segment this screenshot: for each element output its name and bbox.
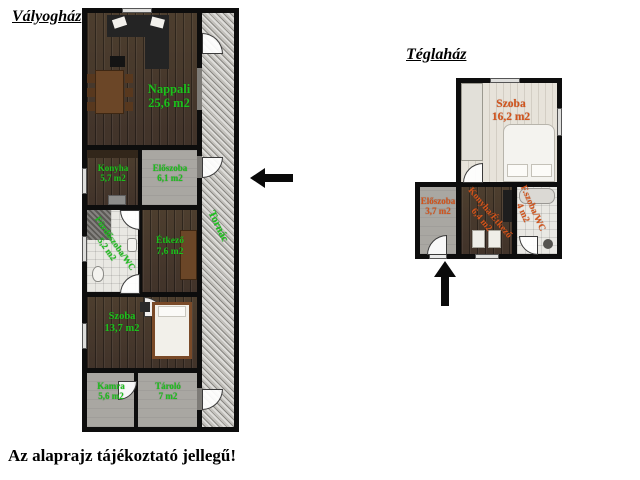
chair [87, 74, 95, 83]
window-icon [82, 168, 87, 194]
left-arrow-head [250, 168, 265, 188]
window-icon [82, 323, 87, 349]
plan-notch [415, 78, 456, 182]
shower [87, 210, 111, 240]
window-icon [475, 254, 499, 259]
valyoghaz-title: Vályogház [12, 8, 81, 26]
sink [127, 238, 137, 252]
sofa [145, 37, 169, 69]
left-arrow-icon [250, 168, 293, 188]
up-arrow-shaft [441, 276, 449, 306]
window-icon [197, 68, 202, 110]
disclaimer-text: Az alaprajz tájékoztató jellegű! [8, 446, 236, 466]
chair [87, 102, 95, 111]
pillow [507, 164, 528, 177]
chair [87, 88, 95, 97]
floorplan-page: Vályogház Téglaház [0, 0, 640, 480]
window-icon [490, 78, 520, 83]
fridge [503, 190, 512, 222]
teglahaz-title: Téglaház [406, 46, 466, 64]
room-tarolo [138, 373, 197, 427]
window-icon [557, 108, 562, 136]
sideboard [180, 230, 197, 280]
toilet [92, 266, 104, 282]
window-icon [122, 8, 152, 13]
valyoghaz-plan: Nappali25,6 m2 Konyha5,7 m2 Előszoba6,1 … [82, 8, 239, 432]
pillow [158, 306, 186, 317]
chair [125, 88, 133, 97]
pillow [531, 164, 552, 177]
bathtub [519, 188, 555, 204]
kitchen-counter [87, 150, 138, 158]
kitchen-table [472, 230, 485, 248]
dining-table [95, 70, 124, 114]
kitchen-table [488, 230, 501, 248]
chair [125, 102, 133, 111]
up-arrow-head [434, 261, 456, 277]
stove [108, 195, 126, 205]
door-arc-icon [118, 381, 137, 400]
chair [125, 74, 133, 83]
nightstand [140, 302, 150, 312]
tv-cabinet [110, 56, 125, 67]
left-arrow-shaft [264, 174, 293, 182]
toilet [543, 239, 553, 249]
up-arrow-icon [433, 261, 457, 307]
wardrobe [461, 83, 483, 161]
teglahaz-plan: Szoba16,2 m2 Előszoba3,7 m2 Konyha/Étkez… [415, 78, 562, 259]
room-tornac [202, 13, 234, 427]
room-eloszoba [142, 150, 197, 205]
